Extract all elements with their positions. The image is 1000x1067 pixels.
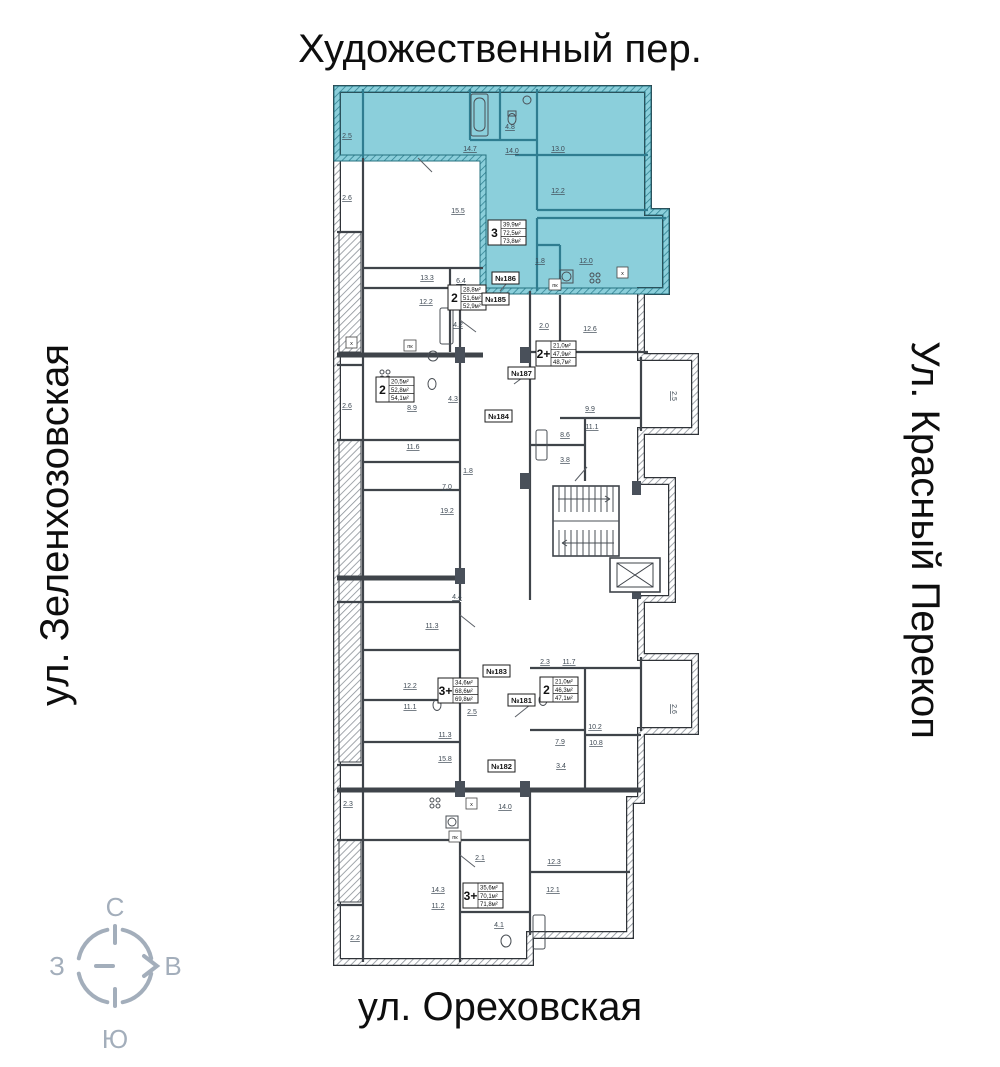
room-dim: 4.1	[494, 922, 504, 929]
svg-text:x: x	[350, 341, 353, 347]
apartment-number-182[interactable]: №182	[488, 760, 515, 772]
svg-text:№185: №185	[485, 295, 506, 304]
apartment-info-183[interactable]: 3+ 34,6м² 68,6м² 69,8м²	[438, 678, 478, 703]
apartment-info-186[interactable]: 3 39,9м² 72,5м² 73,8м²	[488, 220, 526, 245]
svg-text:72,5м²: 72,5м²	[503, 231, 521, 237]
room-dim: 1.8	[535, 258, 545, 265]
svg-text:69,8м²: 69,8м²	[455, 697, 473, 703]
room-dim: 14.0	[505, 148, 519, 155]
svg-text:68,6м²: 68,6м²	[455, 689, 473, 695]
room-dim: 8.6	[560, 432, 570, 439]
room-dim: 11.7	[562, 659, 575, 666]
svg-text:20,5м²: 20,5м²	[391, 380, 409, 386]
street-label-top: Художественный пер.	[298, 27, 702, 71]
room-dim: 7.0	[442, 484, 452, 491]
apartment-info-185[interactable]: 2 28,8м² 51,6м² 52,9м²	[448, 285, 486, 310]
svg-text:21,0м²: 21,0м²	[555, 680, 573, 686]
room-dim: 14.0	[498, 804, 512, 811]
room-dim: 2.6	[342, 403, 352, 410]
room-dim: 2.0	[539, 323, 549, 330]
svg-text:28,8м²: 28,8м²	[463, 288, 481, 294]
room-dim: 12.3	[547, 859, 561, 866]
room-dim: 4.8	[505, 124, 515, 131]
elevator	[610, 558, 660, 592]
svg-text:52,8м²: 52,8м²	[391, 388, 409, 394]
compass-east-arrow-icon	[144, 956, 157, 976]
apartment-number-187[interactable]: №187	[508, 367, 535, 379]
svg-text:73,8м²: 73,8м²	[503, 239, 521, 245]
service-label-x-2: x	[346, 337, 357, 348]
room-dim: 11.3	[425, 623, 438, 630]
svg-text:47,1м²: 47,1м²	[555, 696, 573, 702]
svg-text:39,9м²: 39,9м²	[503, 223, 521, 229]
room-dim: 11.6	[406, 444, 419, 451]
floor-plan-page: Художественный пер. ул. Ореховская ул. З…	[0, 0, 1000, 1067]
svg-text:34,6м²: 34,6м²	[455, 681, 473, 687]
room-dim: 2.3	[343, 801, 353, 808]
svg-text:№187: №187	[511, 369, 532, 378]
room-dim: 15.5	[451, 208, 465, 215]
service-label-x-1: x	[617, 267, 628, 278]
svg-text:54,1м²: 54,1м²	[391, 396, 409, 402]
service-label-pk-3: пк	[449, 831, 461, 842]
room-dim: 15.8	[438, 756, 452, 763]
apartment-info-187[interactable]: 2+ 21,0м² 47,9м² 48,7м²	[536, 341, 576, 366]
svg-text:3+: 3+	[464, 889, 478, 903]
room-dim: 11.1	[403, 704, 416, 711]
room-dim: 2.2	[350, 935, 360, 942]
room-dim: 13.0	[551, 146, 565, 153]
apartment-number-185[interactable]: №185	[482, 293, 509, 305]
svg-text:2+: 2+	[537, 347, 551, 361]
svg-text:47,9м²: 47,9м²	[553, 352, 571, 358]
room-dim: 19.2	[440, 508, 454, 515]
room-dim: 8.9	[407, 405, 417, 412]
street-label-bottom: ул. Ореховская	[358, 985, 642, 1029]
room-dim: 14.3	[431, 887, 445, 894]
compass-label-north: С	[106, 892, 125, 922]
room-dim: 10.8	[589, 740, 603, 747]
svg-text:21,0м²: 21,0м²	[553, 344, 571, 350]
room-dim: 1.8	[463, 468, 473, 475]
room-dim: 12.0	[579, 258, 593, 265]
apartment-info-184[interactable]: 2 20,5м² 52,8м² 54,1м²	[376, 377, 414, 402]
service-label-x-3: x	[466, 798, 477, 809]
svg-text:3+: 3+	[439, 684, 453, 698]
svg-text:46,3м²: 46,3м²	[555, 688, 573, 694]
room-dim: 4.2	[453, 322, 463, 329]
room-dim: 2.5	[467, 709, 477, 716]
room-dim: 12.1	[546, 887, 560, 894]
room-dim: 11.3	[438, 732, 451, 739]
service-label-pk-2: пк	[404, 340, 416, 351]
svg-text:пк: пк	[552, 283, 558, 289]
compass-label-south: Ю	[102, 1024, 128, 1054]
room-dim: 4.4	[452, 594, 462, 601]
compass-label-west: З	[49, 951, 65, 981]
room-dim: 13.3	[420, 275, 434, 282]
room-dim: 4.3	[448, 396, 458, 403]
svg-text:x: x	[621, 271, 624, 277]
svg-text:№183: №183	[486, 667, 507, 676]
room-dim: 10.2	[588, 724, 602, 731]
svg-text:2: 2	[543, 683, 550, 697]
room-dim: 6.4	[456, 278, 466, 285]
svg-text:№184: №184	[488, 412, 510, 421]
room-dim: 2.3	[540, 659, 550, 666]
compass: С Ю З В	[49, 892, 182, 1054]
room-dim: 3.8	[560, 457, 570, 464]
staircase	[553, 486, 619, 556]
svg-text:71,8м²: 71,8м²	[480, 902, 498, 908]
room-dim: 3.4	[556, 763, 566, 770]
room-dim: 11.2	[431, 903, 444, 910]
svg-text:51,6м²: 51,6м²	[463, 296, 481, 302]
room-dim: 2.1	[475, 855, 485, 862]
room-dim: 12.6	[583, 326, 597, 333]
apartment-number-184[interactable]: №184	[485, 410, 512, 422]
service-label-pk-1: пк	[549, 279, 561, 290]
room-dim: 14.7	[463, 146, 477, 153]
room-dim: 2.5	[342, 133, 352, 140]
svg-text:пк: пк	[452, 835, 458, 841]
svg-text:35,6м²: 35,6м²	[480, 886, 498, 892]
svg-text:№181: №181	[511, 696, 532, 705]
svg-text:3: 3	[491, 226, 498, 240]
room-dim: 11.1	[585, 424, 598, 431]
room-dim: 2.6	[670, 704, 677, 714]
svg-text:№182: №182	[491, 762, 512, 771]
apartment-number-186[interactable]: №186	[492, 272, 519, 284]
room-dim: 12.2	[551, 188, 565, 195]
svg-text:2: 2	[451, 291, 458, 305]
apartment-info-181[interactable]: 2 21,0м² 46,3м² 47,1м²	[540, 677, 578, 702]
svg-text:x: x	[470, 802, 473, 808]
svg-text:№186: №186	[495, 274, 516, 283]
room-dim: 12.2	[403, 683, 417, 690]
svg-text:2: 2	[379, 383, 386, 397]
svg-text:52,9м²: 52,9м²	[463, 304, 481, 310]
apartment-number-181[interactable]: №181	[508, 694, 535, 706]
room-dim: 2.5	[670, 391, 677, 401]
apartment-number-183[interactable]: №183	[483, 665, 510, 677]
street-label-right: Ул. Красный Перекоп	[903, 341, 947, 739]
apartment-info-182[interactable]: 3+ 35,6м² 70,1м² 71,8м²	[463, 883, 503, 908]
room-dim: 9.9	[585, 406, 595, 413]
svg-text:пк: пк	[407, 344, 413, 350]
room-dim: 2.6	[342, 195, 352, 202]
floor-plan-canvas: Художественный пер. ул. Ореховская ул. З…	[0, 0, 1000, 1067]
room-dim: 7.9	[555, 739, 565, 746]
svg-text:48,7м²: 48,7м²	[553, 360, 571, 366]
svg-text:70,1м²: 70,1м²	[480, 894, 498, 900]
room-dim: 12.2	[419, 299, 433, 306]
street-label-left: ул. Зеленхозовская	[33, 344, 77, 706]
compass-label-east: В	[164, 951, 181, 981]
